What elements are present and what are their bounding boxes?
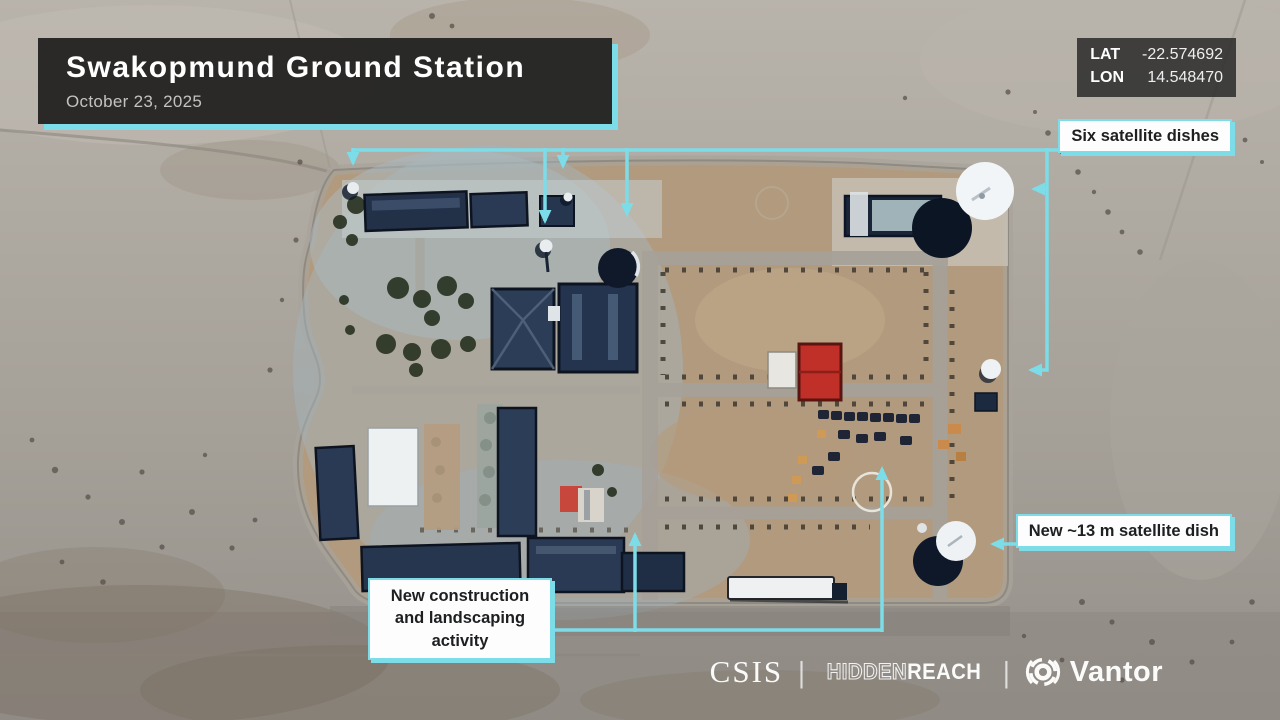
page-title: Swakopmund Ground Station <box>66 51 586 85</box>
lon-value: 14.548470 <box>1142 68 1223 89</box>
lon-label: LON <box>1090 68 1124 89</box>
callout-six-satellite-dishes: Six satellite dishes <box>1058 119 1232 153</box>
coordinates-box: LAT -22.574692 LON 14.548470 <box>1077 38 1236 97</box>
lat-label: LAT <box>1090 45 1124 66</box>
capture-date: October 23, 2025 <box>66 92 586 112</box>
callout-new-construction: New construction and landscaping activit… <box>368 578 552 660</box>
annotated-satellite-view: Swakopmund Ground Station October 23, 20… <box>0 0 1280 720</box>
title-card: Swakopmund Ground Station October 23, 20… <box>38 38 612 124</box>
lat-value: -22.574692 <box>1142 45 1223 66</box>
callout-new-13m-satellite-dish: New ~13 m satellite dish <box>1016 514 1232 548</box>
